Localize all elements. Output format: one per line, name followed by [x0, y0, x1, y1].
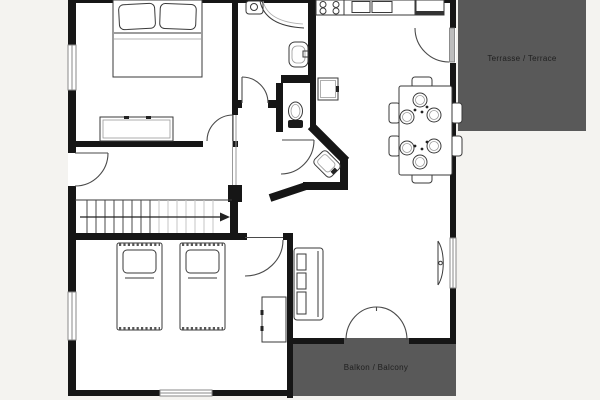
- wall-stair-corner: [228, 185, 242, 202]
- dresser-handle: [146, 116, 151, 119]
- wardrobe-handle: [261, 310, 264, 315]
- toilet-tank: [288, 120, 303, 128]
- wall-bed1: [68, 141, 203, 147]
- wall-balcony: [293, 338, 344, 344]
- wall-right: [450, 288, 456, 344]
- pillow: [118, 3, 155, 30]
- wall-bath-bottom: [232, 100, 242, 108]
- balcony-label: Balkon / Balcony: [344, 363, 408, 372]
- wall-balcony: [409, 338, 456, 344]
- pillow: [123, 250, 156, 273]
- wardrobe-handle: [261, 326, 264, 331]
- fridge-handle: [336, 86, 339, 92]
- pillow: [160, 3, 197, 29]
- chair: [389, 136, 400, 156]
- wall-right: [450, 0, 456, 28]
- wall-washroom-top: [310, 83, 316, 128]
- wall-washroom-bottom: [303, 182, 348, 190]
- wall-living-divider: [287, 233, 293, 398]
- wall-bath-wc: [281, 75, 316, 83]
- wall-left: [68, 340, 76, 396]
- toilet: [288, 102, 303, 128]
- dresser-handle: [124, 116, 129, 119]
- single-bed: [180, 243, 225, 330]
- sofa: [294, 248, 323, 320]
- wall-bottom: [212, 390, 293, 396]
- terrace-deck: [458, 0, 586, 131]
- wall-bath-right: [308, 0, 316, 78]
- wall-left: [68, 0, 76, 45]
- single-bed: [117, 243, 162, 330]
- floorplan-image: Terrasse / Terrace Balkon / Balcony: [0, 0, 600, 400]
- chair: [451, 103, 462, 123]
- pillow: [186, 250, 219, 273]
- chair: [389, 103, 400, 123]
- wall-bottom: [68, 390, 160, 396]
- dining-table: [399, 86, 452, 175]
- chair: [451, 136, 462, 156]
- wall-stair-bottom: [68, 233, 247, 240]
- corridor-wardrobe: [261, 297, 287, 342]
- dining-set: [389, 77, 462, 183]
- terrace-door-leaf: [450, 28, 455, 62]
- terrace-label: Terrasse / Terrace: [487, 54, 557, 63]
- fridge: [318, 78, 339, 100]
- wall-central: [232, 0, 238, 115]
- cabinet-front: [416, 11, 444, 15]
- dresser: [100, 117, 173, 141]
- wall-bath-bottom: [268, 100, 281, 108]
- floor-plan: Terrasse / Terrace Balkon / Balcony: [0, 0, 600, 400]
